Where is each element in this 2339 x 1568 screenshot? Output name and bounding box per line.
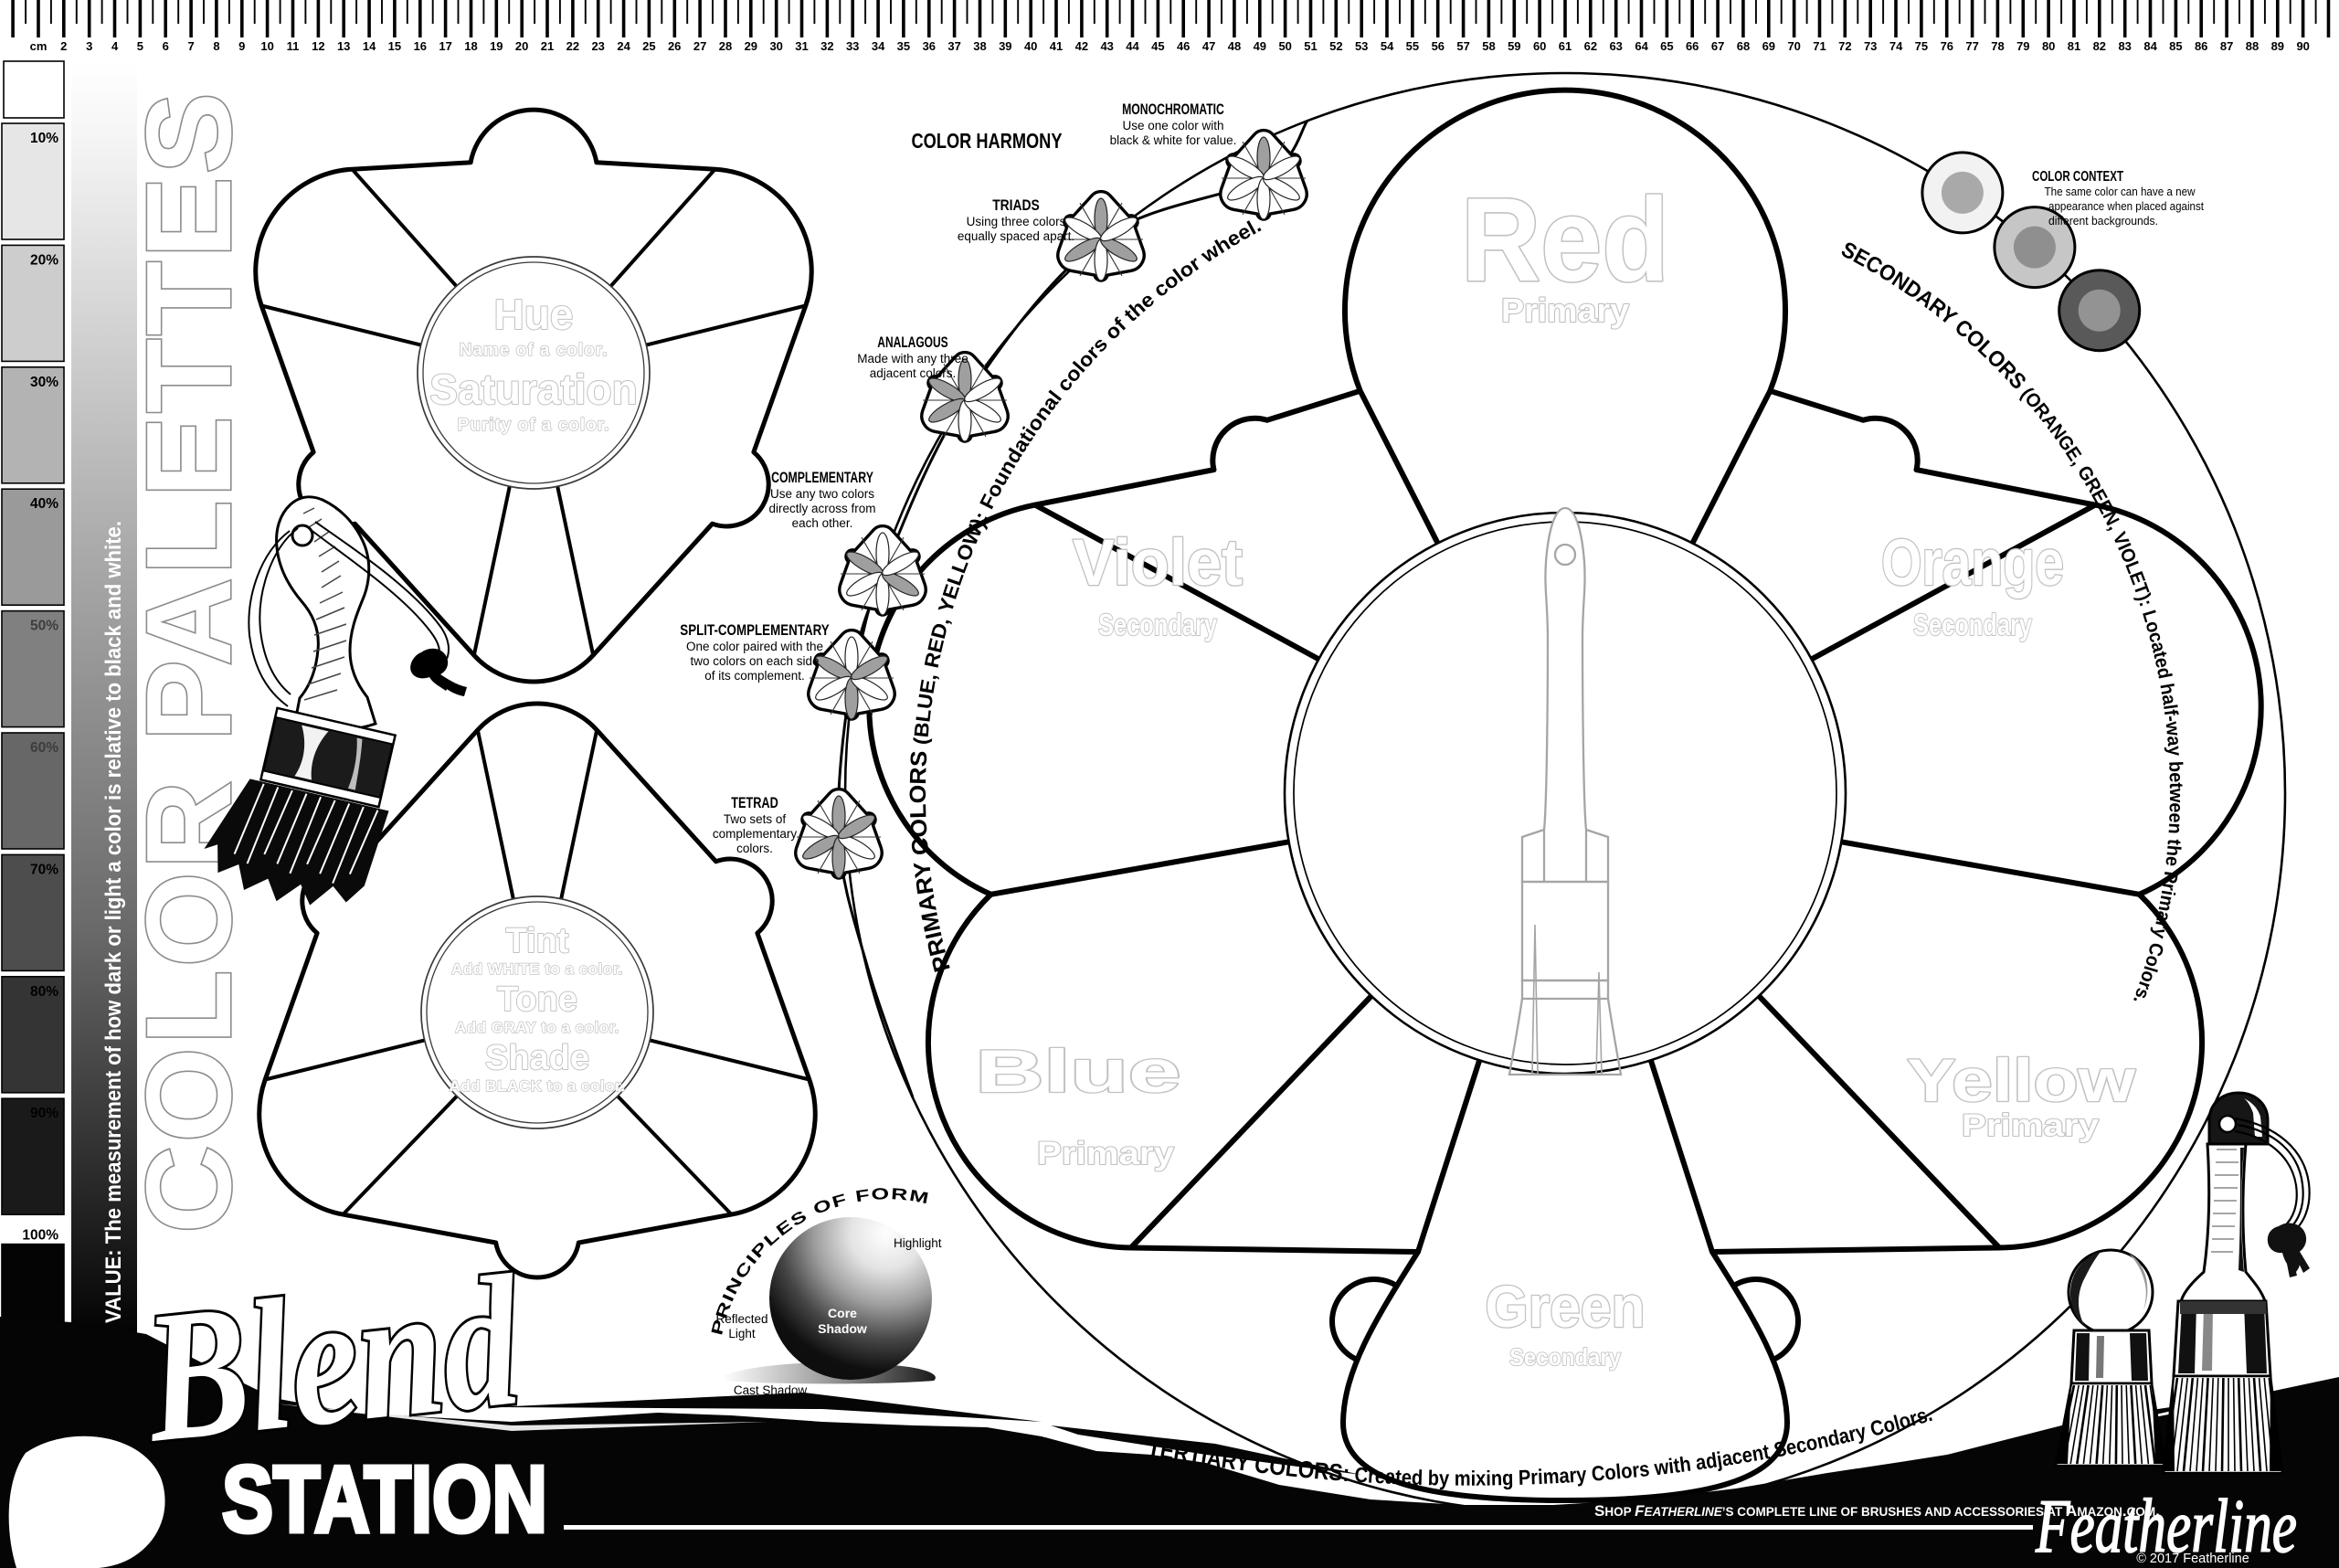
svg-text:78: 78 — [1991, 39, 2004, 53]
svg-text:43: 43 — [1100, 39, 1113, 53]
svg-text:20: 20 — [515, 39, 528, 53]
svg-text:72: 72 — [1838, 39, 1851, 53]
svg-text:COMPLEMENTARY: COMPLEMENTARY — [771, 470, 873, 486]
svg-text:Tint: Tint — [506, 922, 569, 960]
svg-text:9: 9 — [238, 39, 245, 53]
svg-text:5: 5 — [137, 39, 143, 53]
svg-text:89: 89 — [2271, 39, 2284, 53]
svg-text:6: 6 — [163, 39, 169, 53]
svg-text:39: 39 — [999, 39, 1011, 53]
svg-text:Name of a color.: Name of a color. — [460, 341, 609, 360]
svg-text:34: 34 — [872, 39, 885, 53]
svg-text:directly across from: directly across from — [768, 502, 875, 515]
svg-text:79: 79 — [2016, 39, 2029, 53]
svg-text:Shadow: Shadow — [818, 1321, 867, 1336]
svg-text:33: 33 — [846, 39, 859, 53]
svg-text:58: 58 — [1482, 39, 1495, 53]
svg-text:Reflected: Reflected — [715, 1312, 767, 1326]
svg-text:100%: 100% — [22, 1228, 58, 1244]
svg-text:Saturation: Saturation — [429, 366, 637, 413]
svg-text:36: 36 — [923, 39, 936, 53]
svg-text:70: 70 — [1787, 39, 1800, 53]
svg-text:ANALAGOUS: ANALAGOUS — [877, 334, 947, 351]
svg-text:Red: Red — [1461, 173, 1669, 306]
svg-text:50: 50 — [1278, 39, 1291, 53]
svg-text:© 2017 Featherline: © 2017 Featherline — [2136, 1552, 2249, 1566]
svg-text:70%: 70% — [30, 862, 58, 877]
svg-text:27: 27 — [693, 39, 706, 53]
svg-text:32: 32 — [820, 39, 833, 53]
svg-text:68: 68 — [1737, 39, 1750, 53]
svg-text:23: 23 — [591, 39, 604, 53]
svg-text:COLOR PALETTES: COLOR PALETTES — [122, 90, 256, 1234]
svg-text:18: 18 — [464, 39, 477, 53]
svg-text:Primary: Primary — [1962, 1108, 2099, 1143]
svg-text:15: 15 — [388, 39, 401, 53]
svg-text:Highlight: Highlight — [894, 1236, 942, 1250]
svg-text:8: 8 — [213, 39, 219, 53]
svg-text:50%: 50% — [30, 619, 58, 634]
svg-text:black & white for value.: black & white for value. — [1110, 133, 1237, 147]
svg-text:76: 76 — [1941, 39, 1953, 53]
svg-text:37: 37 — [947, 39, 960, 53]
svg-text:One color paired with the: One color paired with the — [686, 640, 823, 653]
svg-text:11: 11 — [287, 39, 300, 53]
svg-text:13: 13 — [337, 39, 350, 53]
svg-text:63: 63 — [1609, 39, 1622, 53]
svg-text:65: 65 — [1660, 39, 1673, 53]
svg-text:Green: Green — [1486, 1274, 1646, 1340]
svg-text:Use any two colors: Use any two colors — [770, 487, 874, 501]
svg-text:appearance when placed against: appearance when placed against — [2048, 200, 2204, 213]
svg-text:17: 17 — [439, 39, 451, 53]
svg-text:54: 54 — [1381, 39, 1394, 53]
svg-text:69: 69 — [1762, 39, 1775, 53]
svg-text:Core: Core — [828, 1306, 857, 1320]
svg-text:20%: 20% — [30, 252, 58, 268]
svg-text:Orange: Orange — [1881, 527, 2064, 599]
svg-text:Made with any three: Made with any three — [857, 352, 968, 366]
svg-text:adjacent colors.: adjacent colors. — [870, 366, 957, 380]
svg-text:52: 52 — [1329, 39, 1342, 53]
svg-text:22: 22 — [566, 39, 579, 53]
svg-text:85: 85 — [2169, 39, 2182, 53]
svg-text:67: 67 — [1711, 39, 1724, 53]
svg-text:53: 53 — [1355, 39, 1368, 53]
svg-text:Use one color with: Use one color with — [1122, 119, 1223, 132]
svg-text:3: 3 — [86, 39, 92, 53]
svg-text:Add BLACK to a color.: Add BLACK to a color. — [450, 1077, 626, 1095]
svg-text:Hue: Hue — [494, 291, 574, 338]
svg-text:74: 74 — [1889, 39, 1903, 53]
svg-text:SPLIT-COMPLEMENTARY: SPLIT-COMPLEMENTARY — [680, 622, 829, 639]
svg-text:46: 46 — [1177, 39, 1190, 53]
svg-text:30%: 30% — [30, 375, 58, 390]
svg-text:The same color can have a new: The same color can have a new — [2045, 185, 2196, 198]
svg-text:61: 61 — [1559, 39, 1572, 53]
svg-text:Two sets of: Two sets of — [724, 812, 787, 826]
svg-text:42: 42 — [1075, 39, 1088, 53]
svg-text:71: 71 — [1813, 39, 1826, 53]
svg-text:TRIADS: TRIADS — [992, 197, 1040, 214]
svg-text:Purity of a color.: Purity of a color. — [458, 416, 610, 435]
svg-text:MONOCHROMATIC: MONOCHROMATIC — [1122, 101, 1224, 118]
svg-text:75: 75 — [1915, 39, 1928, 53]
svg-text:35: 35 — [897, 39, 910, 53]
svg-text:48: 48 — [1228, 39, 1241, 53]
svg-text:28: 28 — [719, 39, 732, 53]
svg-text:26: 26 — [668, 39, 681, 53]
svg-text:40%: 40% — [30, 496, 58, 512]
svg-text:Light: Light — [728, 1327, 756, 1340]
svg-text:88: 88 — [2246, 39, 2259, 53]
svg-text:4: 4 — [111, 39, 119, 53]
svg-text:10: 10 — [260, 39, 273, 53]
svg-text:60%: 60% — [30, 740, 58, 756]
svg-text:47: 47 — [1202, 39, 1215, 53]
svg-text:77: 77 — [1965, 39, 1978, 53]
svg-text:Tone: Tone — [497, 980, 577, 1019]
svg-text:complementary: complementary — [713, 827, 798, 841]
svg-text:45: 45 — [1151, 39, 1164, 53]
svg-text:80: 80 — [2042, 39, 2055, 53]
svg-text:Blend: Blend — [134, 1236, 530, 1482]
svg-text:66: 66 — [1686, 39, 1699, 53]
svg-text:Primary: Primary — [1037, 1136, 1175, 1171]
svg-text:Add WHITE to a color.: Add WHITE to a color. — [451, 960, 623, 978]
svg-text:16: 16 — [414, 39, 427, 53]
svg-text:30: 30 — [769, 39, 782, 53]
svg-text:55: 55 — [1406, 39, 1419, 53]
svg-text:64: 64 — [1635, 39, 1648, 53]
svg-text:COLOR CONTEXT: COLOR CONTEXT — [2032, 169, 2123, 185]
svg-text:cm: cm — [30, 39, 48, 53]
svg-text:2: 2 — [60, 39, 67, 53]
svg-text:80%: 80% — [30, 984, 58, 1000]
svg-text:57: 57 — [1456, 39, 1469, 53]
svg-text:86: 86 — [2195, 39, 2207, 53]
svg-text:STATION: STATION — [222, 1446, 547, 1552]
svg-text:38: 38 — [973, 39, 986, 53]
svg-text:25: 25 — [642, 39, 655, 53]
svg-text:90%: 90% — [30, 1106, 58, 1121]
svg-text:40: 40 — [1024, 39, 1037, 53]
svg-text:different backgrounds.: different backgrounds. — [2048, 215, 2158, 228]
svg-text:COLOR HARMONY: COLOR HARMONY — [912, 129, 1063, 153]
svg-text:two colors on each side: two colors on each side — [690, 654, 819, 668]
svg-text:Secondary: Secondary — [1098, 608, 1217, 641]
svg-text:Secondary: Secondary — [1913, 608, 2032, 641]
svg-text:84: 84 — [2143, 39, 2157, 53]
svg-text:49: 49 — [1254, 39, 1266, 53]
svg-text:73: 73 — [1864, 39, 1877, 53]
svg-text:14: 14 — [363, 39, 376, 53]
svg-text:Shade: Shade — [485, 1039, 589, 1077]
svg-text:56: 56 — [1432, 39, 1445, 53]
svg-text:each other.: each other. — [792, 516, 853, 530]
svg-text:21: 21 — [541, 39, 554, 53]
svg-text:Add GRAY to a color.: Add GRAY to a color. — [455, 1019, 619, 1036]
svg-text:31: 31 — [795, 39, 808, 53]
svg-text:TETRAD: TETRAD — [731, 795, 778, 811]
svg-text:44: 44 — [1126, 39, 1139, 53]
svg-text:90: 90 — [2296, 39, 2309, 53]
svg-text:Using three colors: Using three colors — [967, 215, 1066, 228]
svg-text:29: 29 — [745, 39, 757, 53]
svg-text:51: 51 — [1304, 39, 1317, 53]
svg-text:Primary: Primary — [1501, 291, 1629, 329]
svg-text:19: 19 — [490, 39, 503, 53]
svg-text:colors.: colors. — [736, 842, 773, 855]
svg-text:equally spaced apart.: equally spaced apart. — [958, 229, 1074, 243]
svg-text:12: 12 — [312, 39, 324, 53]
svg-text:81: 81 — [2068, 39, 2080, 53]
svg-text:Violet: Violet — [1073, 527, 1243, 599]
svg-text:82: 82 — [2093, 39, 2106, 53]
svg-text:of its complement.: of its complement. — [704, 669, 805, 683]
svg-text:Yellow: Yellow — [1907, 1046, 2136, 1114]
svg-text:83: 83 — [2118, 39, 2131, 53]
svg-text:59: 59 — [1508, 39, 1520, 53]
svg-text:Secondary: Secondary — [1509, 1343, 1621, 1371]
svg-text:60: 60 — [1533, 39, 1546, 53]
svg-text:62: 62 — [1584, 39, 1597, 53]
svg-text:41: 41 — [1050, 39, 1063, 53]
svg-text:Blue: Blue — [976, 1037, 1181, 1105]
svg-text:24: 24 — [617, 39, 630, 53]
svg-text:7: 7 — [187, 39, 194, 53]
svg-text:87: 87 — [2220, 39, 2233, 53]
svg-text:10%: 10% — [30, 131, 58, 146]
